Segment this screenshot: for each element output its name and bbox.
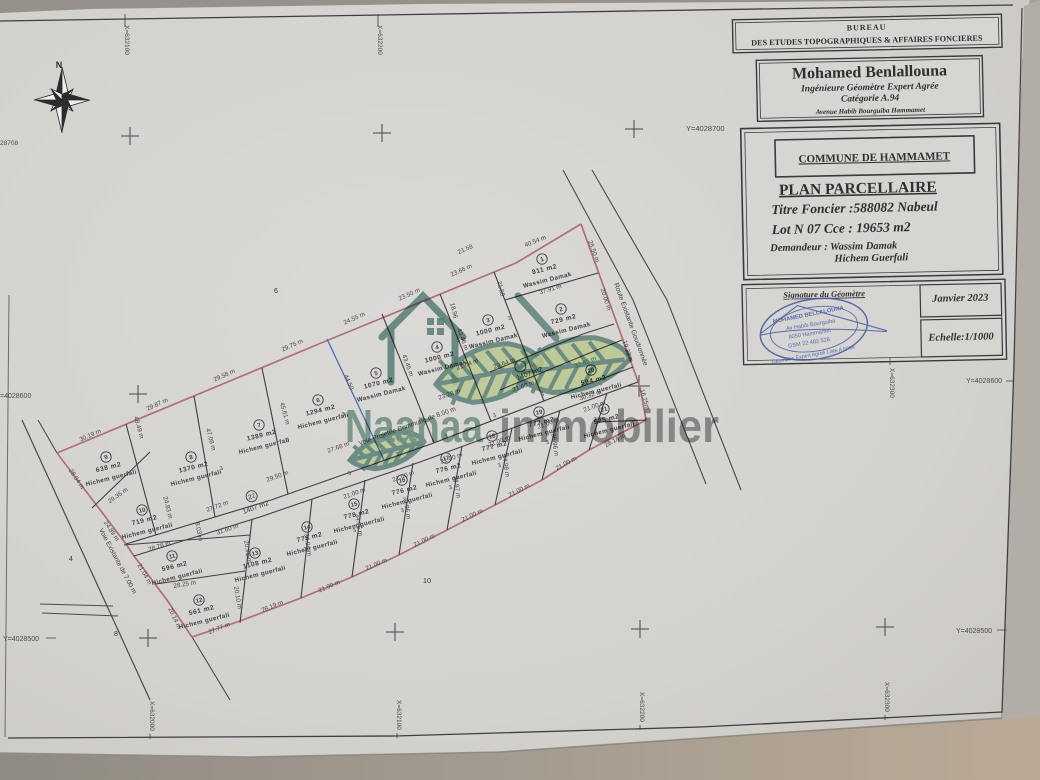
svg-text:X=632300: X=632300 (883, 682, 890, 712)
svg-text:PLAN PARCELLAIRE: PLAN PARCELLAIRE (779, 179, 937, 199)
svg-text:immobilier: immobilier (499, 400, 719, 452)
svg-text:=4028600: =4028600 (0, 393, 31, 400)
svg-text:Lot N 07 Cce : 19653 m2: Lot N 07 Cce : 19653 m2 (771, 219, 911, 237)
svg-text:Y=4028500: Y=4028500 (956, 628, 992, 635)
svg-text:X=632300: X=632300 (888, 368, 895, 398)
svg-text:Hichem Guerfali: Hichem Guerfali (833, 252, 908, 265)
svg-text:X=632100: X=632100 (123, 25, 130, 55)
svg-text:Mohamed Benlallouna: Mohamed Benlallouna (792, 62, 947, 82)
svg-text:Catégorie A.94: Catégorie A.94 (841, 93, 900, 104)
svg-text:Naanaa: Naanaa (345, 400, 483, 452)
svg-text:28708: 28708 (0, 140, 18, 147)
svg-text:Y=4028700: Y=4028700 (686, 124, 725, 133)
svg-text:Y=4028500: Y=4028500 (3, 636, 39, 643)
svg-text:X=632000: X=632000 (148, 701, 155, 731)
svg-text:Echelle:1/1000: Echelle:1/1000 (927, 331, 994, 343)
svg-text:N: N (56, 60, 63, 70)
svg-text:6: 6 (274, 288, 278, 295)
svg-text:Y=4028600: Y=4028600 (966, 378, 1002, 385)
svg-text:X=632200: X=632200 (638, 692, 645, 722)
svg-text:Janvier 2023: Janvier 2023 (931, 293, 989, 305)
svg-text:BUREAU: BUREAU (847, 23, 887, 33)
svg-text:X=632200: X=632200 (376, 25, 383, 55)
svg-text:8: 8 (114, 631, 118, 638)
svg-text:X=632100: X=632100 (395, 700, 402, 730)
svg-text:10: 10 (423, 576, 431, 585)
svg-text:4: 4 (69, 556, 73, 563)
